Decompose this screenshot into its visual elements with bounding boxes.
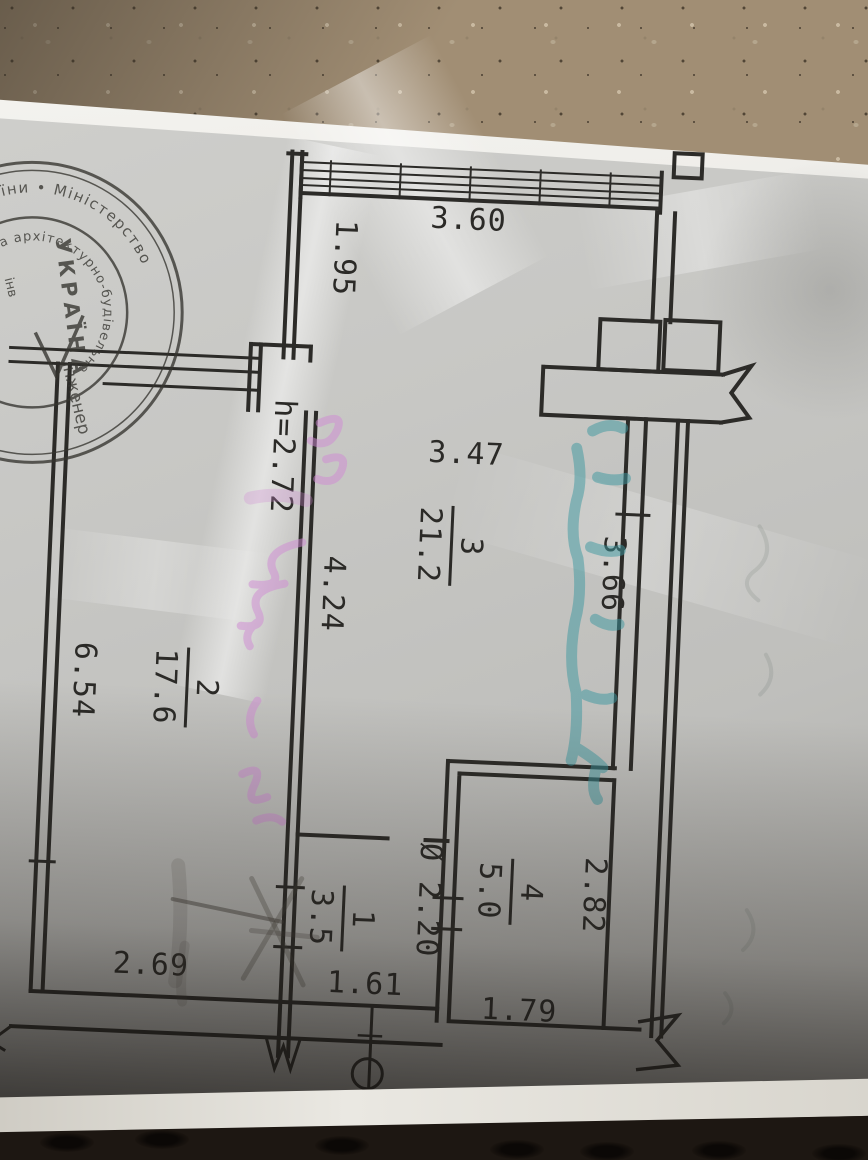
dim-room4-width: 1.79 (480, 992, 558, 1030)
room-area: 17.6 (145, 648, 183, 726)
stamp-fragment: інв (1, 276, 20, 299)
sleeve-hole (315, 1136, 369, 1155)
room-4-label: 4 5.0 (470, 857, 550, 926)
ink-bleed-ghosts (724, 526, 778, 1025)
sleeve-hole (580, 1142, 634, 1160)
room-number: 2 (189, 678, 225, 699)
room-area: 5.0 (470, 862, 507, 921)
photo-of-floor-plan: господарства україни • Міністерство інве… (0, 0, 868, 1160)
sleeve-hole (692, 1141, 746, 1160)
floor-plan-drawing: господарства україни • Міністерство інве… (0, 0, 868, 1160)
dim-room2-height: 6.54 (65, 641, 103, 719)
sleeve-hole (490, 1140, 544, 1159)
round-stamp: господарства україни • Міністерство інве… (0, 115, 229, 509)
room-1-label: 1 3.5 (302, 884, 382, 953)
sleeve-hole (40, 1133, 94, 1152)
dim-room1-height: Ø 2.20 (408, 842, 448, 958)
dim-upper-left-height: 1.95 (325, 219, 363, 297)
dim-room3-width: 3.47 (428, 435, 506, 473)
room-2-label: 2 17.6 (145, 646, 225, 729)
sleeve-hole (812, 1144, 866, 1160)
dim-room1-width: 1.61 (326, 965, 404, 1003)
room-3-label: 3 21.2 (410, 504, 490, 587)
room-number: 1 (345, 909, 381, 930)
room-area: 21.2 (410, 506, 448, 584)
room-number: 4 (513, 882, 549, 903)
sleeve-hole (135, 1130, 189, 1149)
room-number: 3 (453, 536, 489, 557)
pencil-scribble (168, 865, 320, 1007)
dim-room4-height: 2.82 (575, 857, 613, 935)
dim-room3-height-left: 4.24 (314, 555, 352, 633)
dimension-labels: 3.60 1.95 3.47 3.66 h=2.72 4.24 6.54 2.8… (52, 186, 646, 1033)
dim-top-width: 3.60 (430, 201, 508, 239)
